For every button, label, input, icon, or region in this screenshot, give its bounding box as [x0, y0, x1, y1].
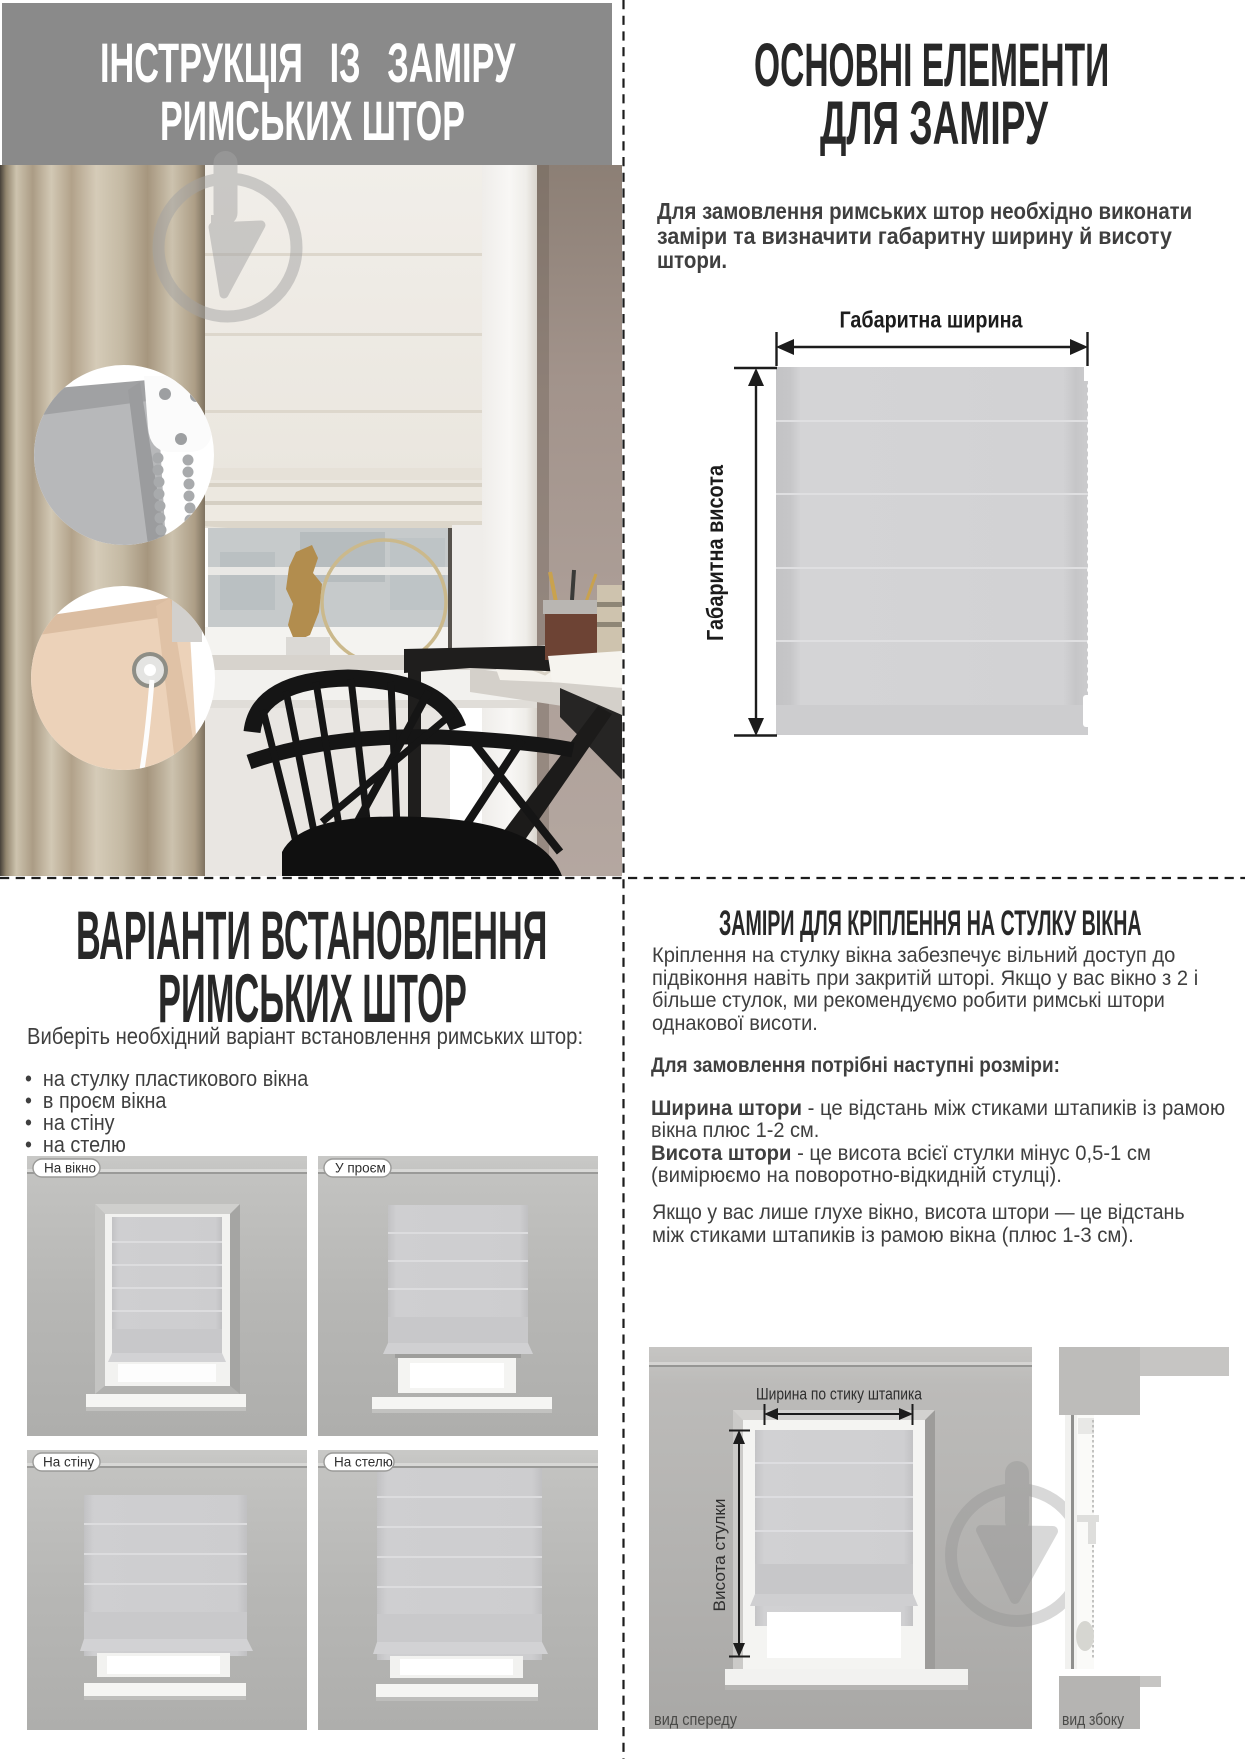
svg-text:На вікно: На вікно	[44, 1161, 96, 1176]
svg-text:Габаритна висота: Габаритна висота	[702, 465, 728, 641]
svg-text:Габаритна ширина: Габаритна ширина	[840, 307, 1023, 333]
svg-text:У проєм: У проєм	[335, 1161, 386, 1176]
svg-text:вид спереду: вид спереду	[654, 1710, 737, 1729]
svg-text:Висота стулки: Висота стулки	[710, 1499, 729, 1612]
svg-text:На стелю: На стелю	[334, 1455, 393, 1470]
svg-text:На стіну: На стіну	[43, 1455, 94, 1470]
svg-text:вид збоку: вид збоку	[1062, 1710, 1124, 1729]
svg-text:Ширина по стику штапика: Ширина по стику штапика	[756, 1386, 923, 1404]
